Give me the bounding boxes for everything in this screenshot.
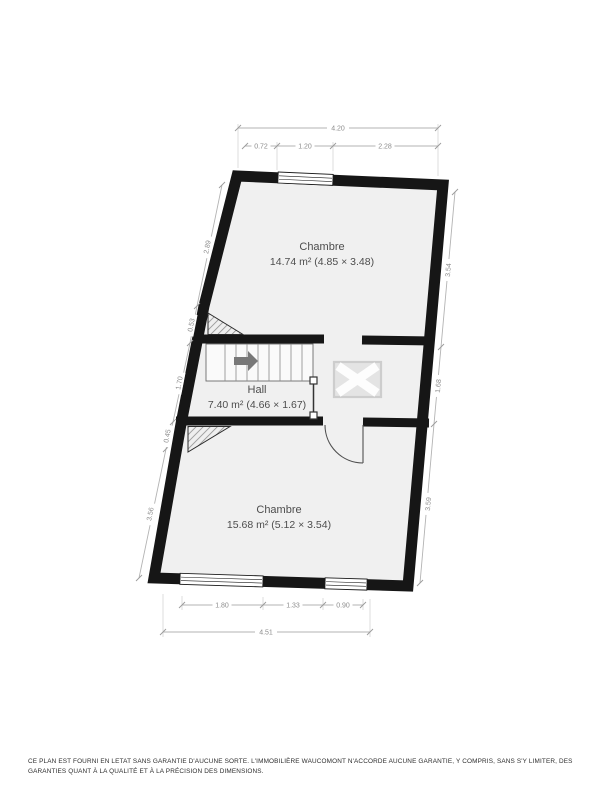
room-area: 15.68 m² (5.12 × 3.54) [227,519,331,531]
dim-bottom-total: 4.51 [259,630,273,637]
dim-right-seg-1: 3.54 [445,263,453,277]
hall-top-wall-right [362,340,434,341]
dim-top-seg-1: 0.72 [254,144,268,151]
dim-right-seg-3: 3.59 [425,497,433,511]
room-name: Chambre [256,504,301,516]
footer-disclaimer: CE PLAN EST FOURNI EN LETAT SANS GARANTI… [28,757,584,777]
dim-bottom-seg-1: 1.80 [215,603,229,610]
room-name: Chambre [299,241,344,253]
dim-bottom-seg-2: 1.33 [286,603,300,610]
window-bottom-right [325,578,367,590]
dim-right-seg-2: 1.68 [435,379,443,393]
dimension-bottom: 1.80 1.33 0.90 4.51 [160,594,373,637]
dim-left-seg-1: 2.89 [203,240,212,255]
window-top [278,172,333,185]
floor-plan-page: 4.20 0.72 1.20 2.28 2.89 0.53 1.70 [0,0,603,800]
staircase [206,344,313,381]
dim-top-total: 4.20 [331,126,345,133]
hall-bottom-wall-right [363,422,429,423]
dim-top-seg-2: 1.20 [298,144,312,151]
skylight-icon [334,362,381,397]
room-name: Hall [248,384,267,396]
dim-bottom-seg-3: 0.90 [336,603,350,610]
window-bottom-left [180,573,263,587]
floor-plan-svg: 4.20 0.72 1.20 2.28 2.89 0.53 1.70 [0,0,603,800]
dimension-top: 4.20 0.72 1.20 2.28 [235,124,441,177]
dim-left-seg-4: 0.45 [163,429,172,444]
dim-left-seg-5: 3.56 [146,507,155,522]
room-area: 7.40 m² (4.66 × 1.67) [208,399,306,411]
dim-top-seg-3: 2.28 [378,144,392,151]
room-area: 14.74 m² (4.85 × 3.48) [270,256,374,268]
